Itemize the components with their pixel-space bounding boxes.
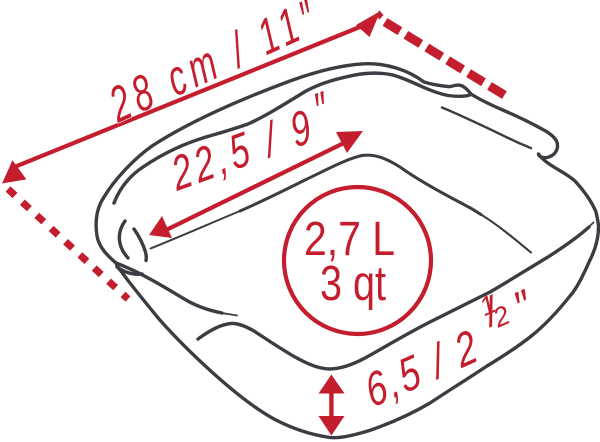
svg-text:3 qt: 3 qt [320,257,386,311]
